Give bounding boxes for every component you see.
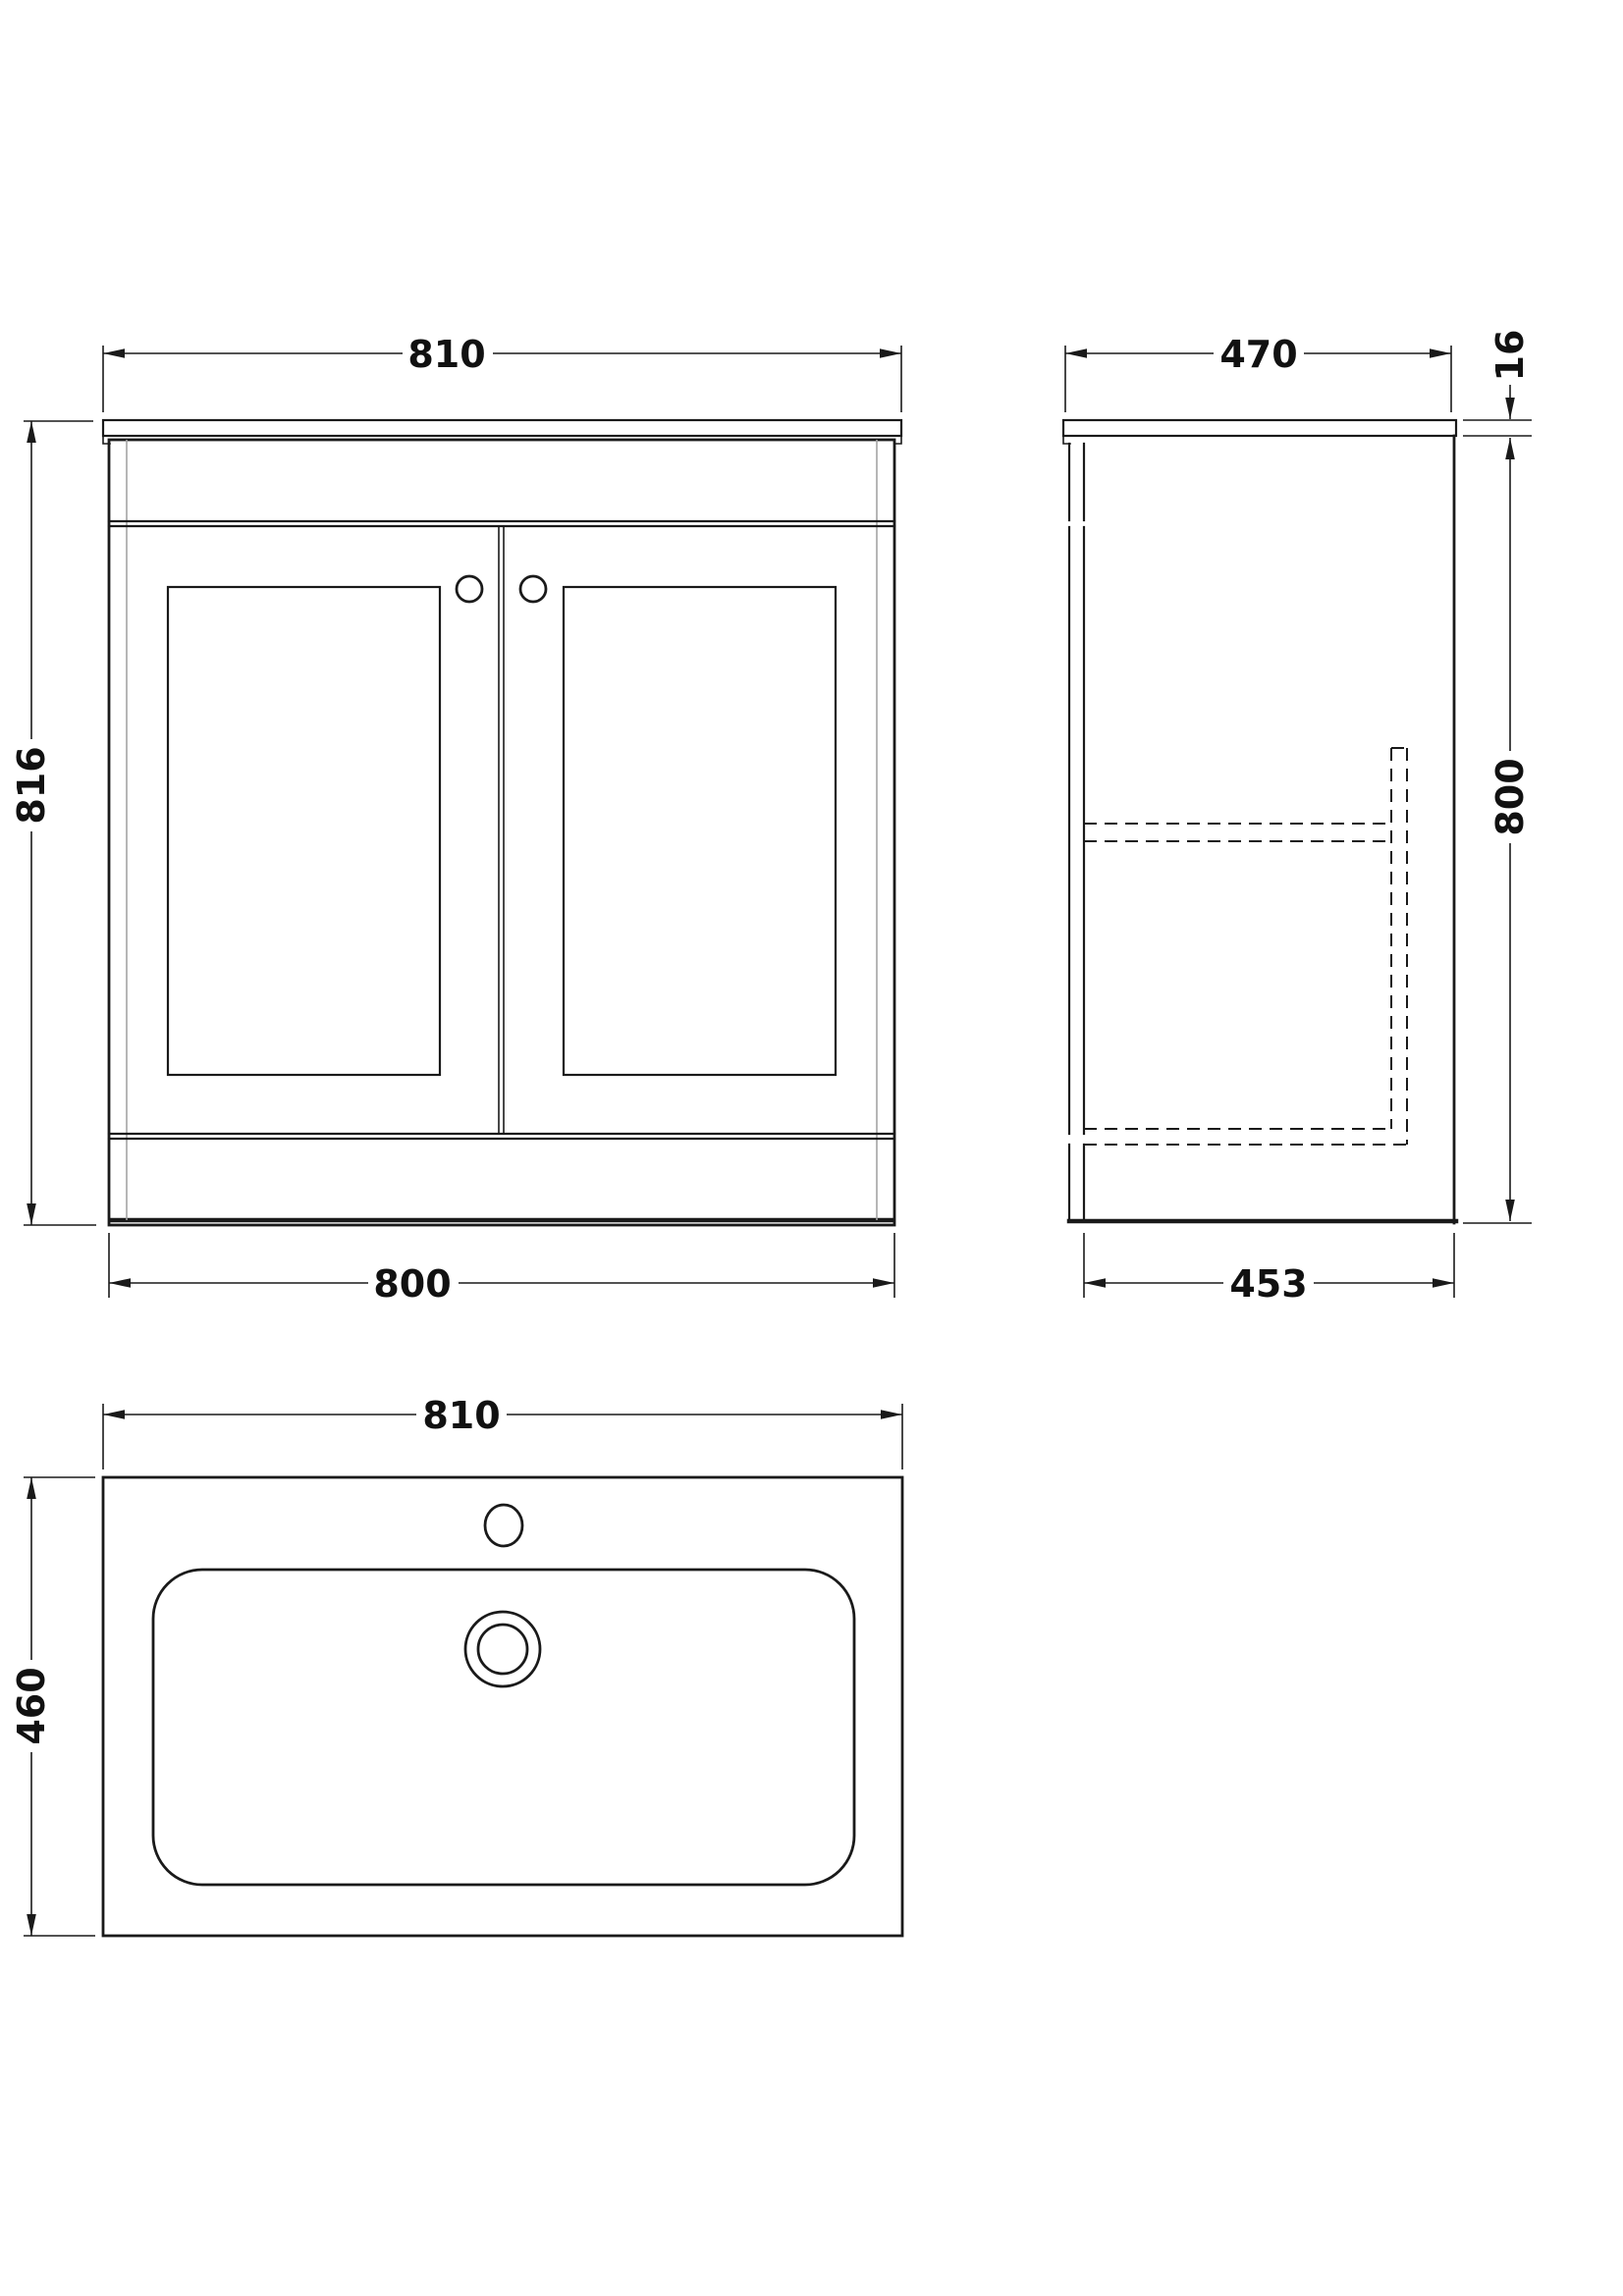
side-height-label: 800	[1488, 758, 1532, 835]
tap-hole	[485, 1505, 522, 1546]
left-door-panel	[168, 587, 440, 1075]
side-worktop-front-step	[1063, 436, 1070, 444]
side-dim-depth-bottom: 453	[1084, 1233, 1454, 1306]
basin-plan-view: 810 460	[10, 1393, 902, 1936]
front-dim-height: 816	[10, 421, 96, 1225]
side-dim-depth-top: 470	[1065, 332, 1451, 412]
side-depth-bottom-label: 453	[1229, 1262, 1307, 1306]
side-dim-height: 800	[1463, 438, 1532, 1223]
right-door-panel	[564, 587, 836, 1075]
front-dim-width-top: 810	[103, 332, 901, 412]
front-width-bottom-label: 800	[373, 1262, 451, 1306]
front-width-top-label: 810	[407, 333, 485, 376]
side-worktop	[1063, 420, 1456, 436]
plan-depth-label: 460	[10, 1667, 53, 1744]
waste-hole-inner	[478, 1625, 527, 1674]
vanity-dimension-drawing: 810 816 800	[0, 0, 1623, 2296]
technical-drawing-canvas: 810 816 800	[0, 0, 1623, 2296]
side-dim-worktop-thickness: 16	[1463, 330, 1532, 436]
front-worktop	[103, 420, 901, 436]
front-view: 810 816 800	[10, 332, 901, 1306]
right-door-knob	[520, 576, 546, 602]
side-hidden-lines	[1084, 748, 1407, 1145]
plan-width-label: 810	[422, 1394, 500, 1437]
side-depth-top-label: 470	[1219, 333, 1297, 376]
front-cabinet-body	[109, 440, 894, 1225]
front-dim-width-bottom: 800	[109, 1233, 894, 1306]
front-height-label: 816	[10, 746, 53, 824]
left-door-knob	[457, 576, 482, 602]
plan-dim-width: 810	[103, 1393, 902, 1469]
side-door-front-edge	[1069, 444, 1084, 1220]
side-view: 470 16 800 453	[1063, 330, 1532, 1306]
plan-dim-depth: 460	[10, 1477, 95, 1936]
side-worktop-thickness-label: 16	[1488, 330, 1532, 382]
basin-bowl	[153, 1570, 854, 1885]
waste-hole-outer	[465, 1612, 540, 1686]
